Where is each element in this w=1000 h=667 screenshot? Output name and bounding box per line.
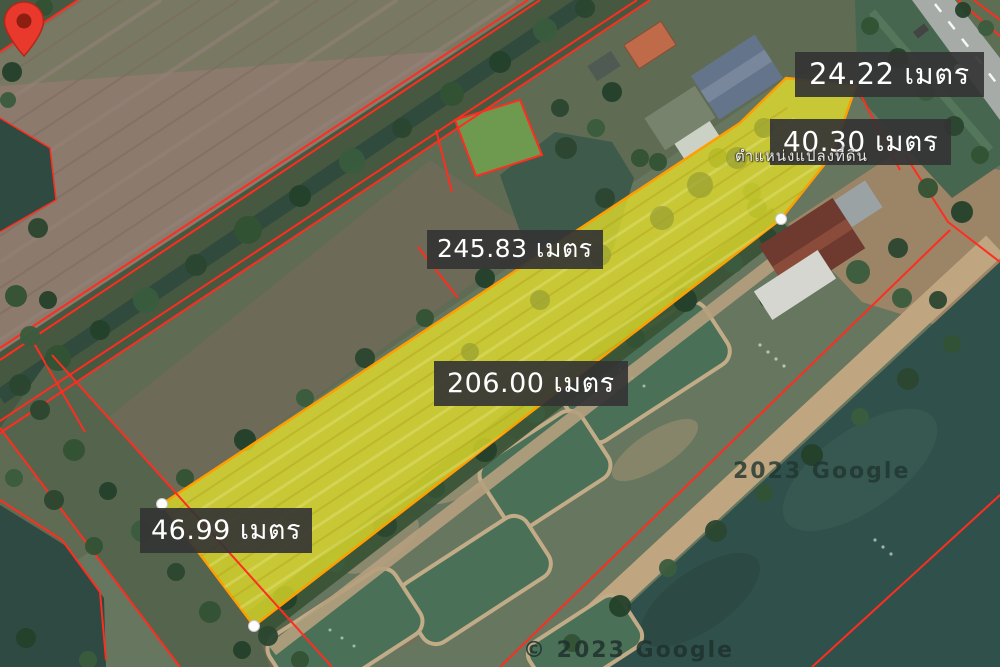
map-canvas[interactable]: [0, 0, 1000, 667]
measurement-label-206-00: 206.00 เมตร: [434, 361, 628, 406]
tree-icon: [609, 595, 631, 617]
google-watermark-bottom: © 2023 Google: [523, 638, 734, 663]
tree-icon: [943, 335, 961, 353]
tree-icon: [289, 185, 311, 207]
tree-icon: [755, 484, 773, 502]
tree-icon: [851, 408, 869, 426]
tree-icon: [489, 51, 511, 73]
tree-icon: [258, 626, 278, 646]
tree-icon: [9, 374, 31, 396]
tree-icon: [955, 2, 971, 18]
tree-icon: [971, 146, 989, 164]
tree-icon: [2, 62, 22, 82]
tree-icon: [234, 216, 262, 244]
place-label: ตำแหน่งแปลงที่ดิน: [735, 144, 868, 168]
tree-icon: [929, 291, 947, 309]
tree-icon: [90, 320, 110, 340]
tree-icon: [30, 400, 50, 420]
tree-icon: [440, 82, 464, 106]
tree-icon: [45, 345, 71, 371]
tree-icon: [888, 238, 908, 258]
google-watermark-center: 2023 Google: [733, 459, 910, 484]
tree-icon: [551, 99, 569, 117]
tree-icon: [44, 490, 64, 510]
tree-icon: [416, 309, 434, 327]
tree-icon: [85, 537, 103, 555]
tree-icon: [892, 288, 912, 308]
tree-icon: [602, 82, 622, 102]
tree-icon: [5, 469, 23, 487]
tree-icon: [861, 17, 879, 35]
tree-icon: [63, 439, 85, 461]
tree-icon: [16, 628, 36, 648]
tree-icon: [846, 260, 870, 284]
satellite-map: 24.22 เมตร 40.30 เมตร 245.83 เมตร 206.00…: [0, 0, 1000, 667]
measurement-label-245-83: 245.83 เมตร: [427, 230, 603, 269]
tree-icon: [39, 291, 57, 309]
tree-icon: [649, 153, 667, 171]
tree-icon: [339, 148, 365, 174]
tree-icon: [587, 119, 605, 137]
tree-icon: [5, 285, 27, 307]
tree-icon: [20, 326, 40, 346]
tree-icon: [555, 137, 577, 159]
tree-icon: [978, 20, 994, 36]
tree-icon: [392, 118, 412, 138]
tree-icon: [199, 601, 221, 623]
tree-icon: [631, 149, 649, 167]
tree-icon: [133, 287, 159, 313]
tree-icon: [167, 563, 185, 581]
measurement-label-46-99: 46.99 เมตร: [140, 508, 312, 553]
tree-icon: [595, 188, 615, 208]
tree-icon: [951, 201, 973, 223]
tree-icon: [0, 92, 16, 108]
tree-icon: [659, 559, 677, 577]
tree-icon: [99, 482, 117, 500]
tree-icon: [918, 178, 938, 198]
measurement-label-24-22: 24.22 เมตร: [795, 52, 984, 97]
tree-icon: [233, 641, 251, 659]
tree-icon: [705, 520, 727, 542]
tree-icon: [28, 218, 48, 238]
tree-icon: [533, 18, 557, 42]
map-pin-icon: [0, 0, 48, 58]
tree-icon: [897, 368, 919, 390]
tree-icon: [185, 254, 207, 276]
